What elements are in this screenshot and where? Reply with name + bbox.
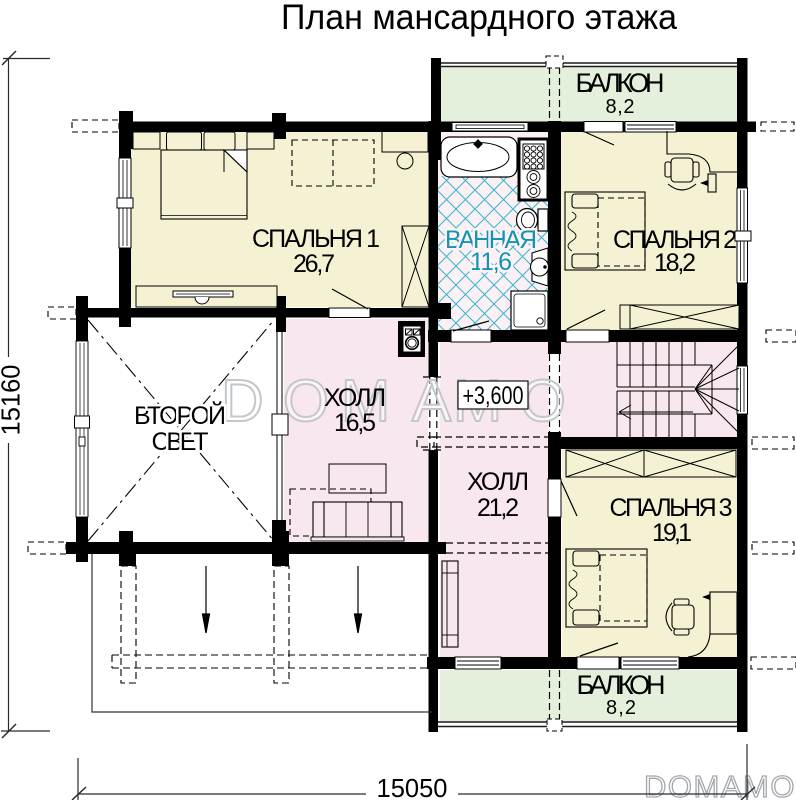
svg-text:ВТОРОЙ: ВТОРОЙ <box>134 400 226 430</box>
svg-text:DOMAMO: DOMAMO <box>644 769 796 800</box>
svg-text:19,1: 19,1 <box>652 519 692 547</box>
svg-text:15050: 15050 <box>377 775 448 800</box>
svg-text:A: A <box>412 368 452 434</box>
svg-text:+3,600: +3,600 <box>463 382 524 410</box>
svg-text:21,2: 21,2 <box>477 494 519 522</box>
svg-text:СПАЛЬНЯ 1: СПАЛЬНЯ 1 <box>252 225 380 253</box>
svg-text:15160: 15160 <box>0 365 26 436</box>
svg-text:БАЛКОН: БАЛКОН <box>576 68 665 98</box>
svg-text:8,2: 8,2 <box>606 697 636 719</box>
svg-text:18,2: 18,2 <box>654 249 696 277</box>
svg-text:БАЛКОН: БАЛКОН <box>577 670 666 700</box>
svg-text:11,6: 11,6 <box>470 248 512 276</box>
svg-text:16,5: 16,5 <box>334 409 376 437</box>
svg-text:8,2: 8,2 <box>606 96 635 118</box>
svg-text:СПАЛЬНЯ 3: СПАЛЬНЯ 3 <box>610 494 733 522</box>
svg-text:ХОЛЛ: ХОЛЛ <box>467 468 529 496</box>
svg-text:ХОЛЛ: ХОЛЛ <box>324 384 386 412</box>
svg-text:D: D <box>221 368 264 434</box>
svg-text:O: O <box>283 368 329 434</box>
svg-text:План мансардного этажа: План мансардного этажа <box>281 0 677 37</box>
svg-text:СВЕТ: СВЕТ <box>152 428 209 456</box>
svg-text:26,7: 26,7 <box>293 250 335 278</box>
